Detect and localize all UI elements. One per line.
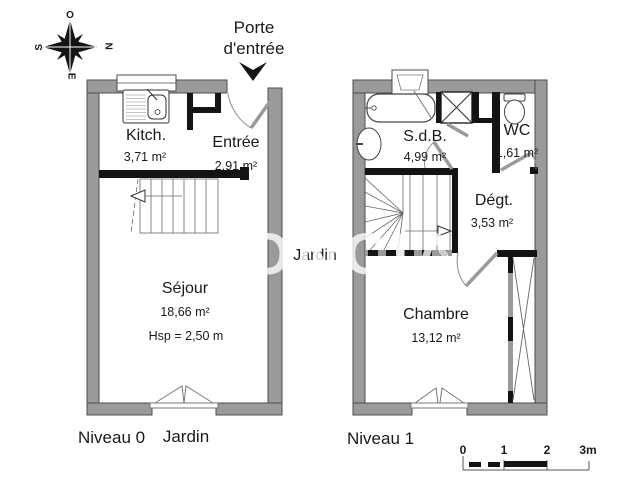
room-degt-label: Dégt. [475,193,513,210]
room-wc-area: 1,61 m² [496,147,538,160]
garden-bottom-label: Jardin [163,428,209,446]
staircase-icon [131,179,218,233]
roof-window-icon [392,70,428,94]
compass-east-label: E [65,73,76,80]
room-degt-area: 3,53 m² [471,217,513,230]
level1-label: Niveau 1 [347,430,414,448]
scale-tick-0: 0 [460,444,467,457]
kitchen-window-icon [117,75,176,91]
entrance-door-label: Porte d'entrée [215,17,293,60]
entrance-arrow-icon [239,62,267,81]
level0-outer-walls [87,80,282,415]
room-sejour-ceiling: Hsp = 2,50 m [149,330,224,343]
garden-side-label: Jardin [293,248,337,265]
room-sejour-area: 18,66 m² [160,306,209,319]
room-wc-label: WC [504,123,531,140]
compass-rose-icon [43,20,97,74]
scale-tick-1: 1 [501,444,508,457]
room-sejour-label: Séjour [162,281,208,298]
scale-tick-3: 3m [579,444,596,457]
scale-bar [463,456,589,470]
floor-plan-page: Porte d'entrée O N S E Kitch. 3,71 m² En… [0,0,640,480]
winder-staircase-icon [365,175,451,250]
room-kitchen-area: 3,71 m² [124,151,166,164]
bedroom-door-swing-icon [457,253,497,286]
wardrobe-icon [508,257,534,403]
room-chambre-area: 13,12 m² [411,332,460,345]
french-window-icon [150,386,218,408]
room-entree-label: Entrée [212,135,259,152]
scale-tick-2: 2 [544,444,551,457]
compass-west-label: O [66,11,74,22]
compass-south-label: S [35,44,46,51]
floor-plan-drawing [0,0,640,480]
room-sdb-area: 4,99 m² [404,151,446,164]
bedroom-window-icon [411,388,468,408]
level0-label: Niveau 0 [78,429,145,447]
toilet-icon [504,94,525,124]
room-sdb-label: S.d.B. [403,129,447,146]
room-kitchen-label: Kitch. [126,128,166,145]
room-entree-area: 2,91 m² [215,160,257,173]
room-chambre-label: Chambre [403,307,469,324]
compass-north-label: N [102,43,113,50]
bathtub-icon [365,91,435,122]
level0-plan [87,75,282,415]
kitchen-sink-icon [123,89,169,123]
